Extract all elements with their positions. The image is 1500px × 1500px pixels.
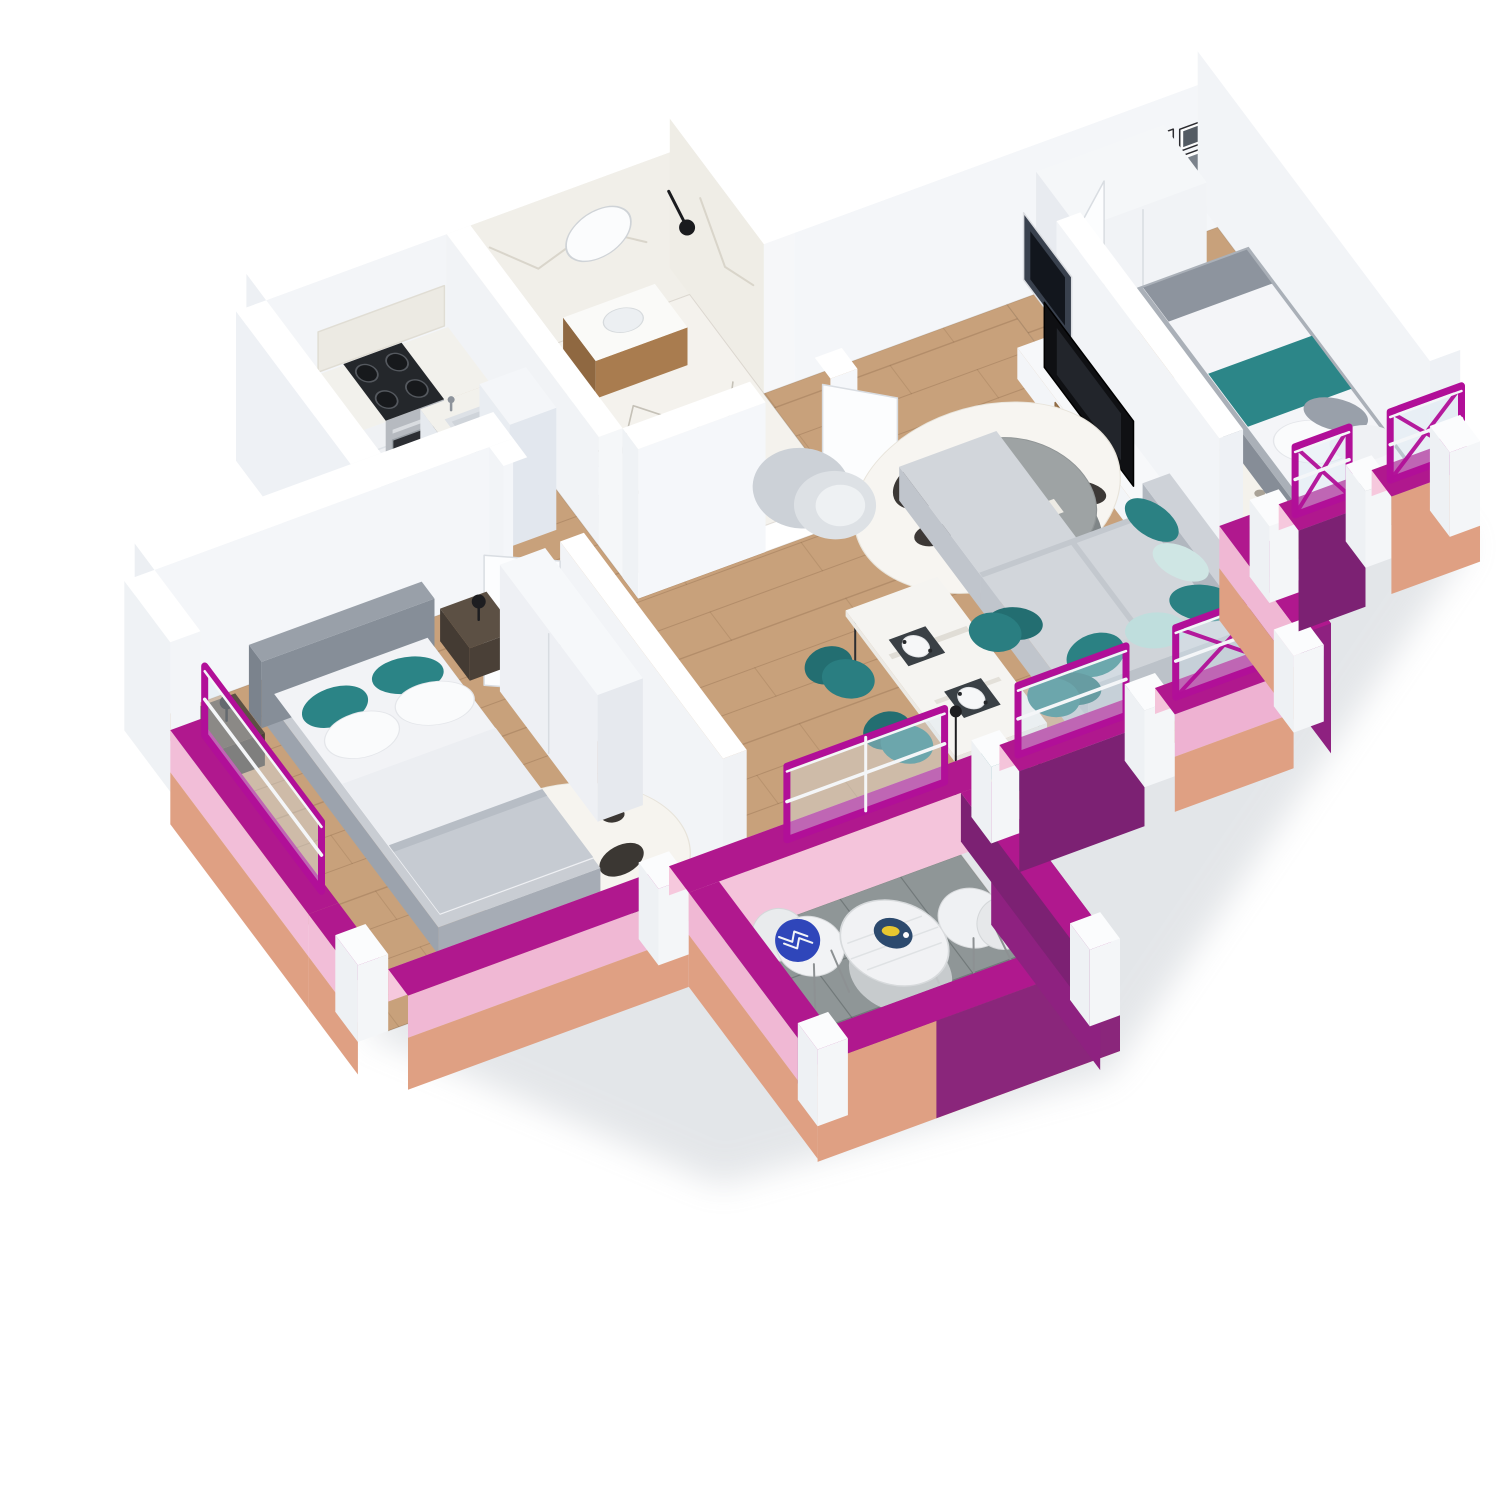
- floorplan-3d-render: [0, 0, 1500, 1500]
- wall-pier: [1070, 912, 1120, 1026]
- bedroom2-window: [1295, 427, 1349, 515]
- floorplan-svg: [0, 0, 1500, 1500]
- chair-leg: [814, 964, 815, 1009]
- tray-cup: [903, 932, 909, 938]
- cutlery: [984, 701, 988, 705]
- wall-pier: [798, 1012, 848, 1126]
- wall-pier: [1430, 415, 1480, 537]
- cutlery: [928, 649, 932, 653]
- cutlery: [958, 692, 962, 696]
- wall-pier: [1274, 618, 1324, 732]
- cutlery: [902, 640, 906, 644]
